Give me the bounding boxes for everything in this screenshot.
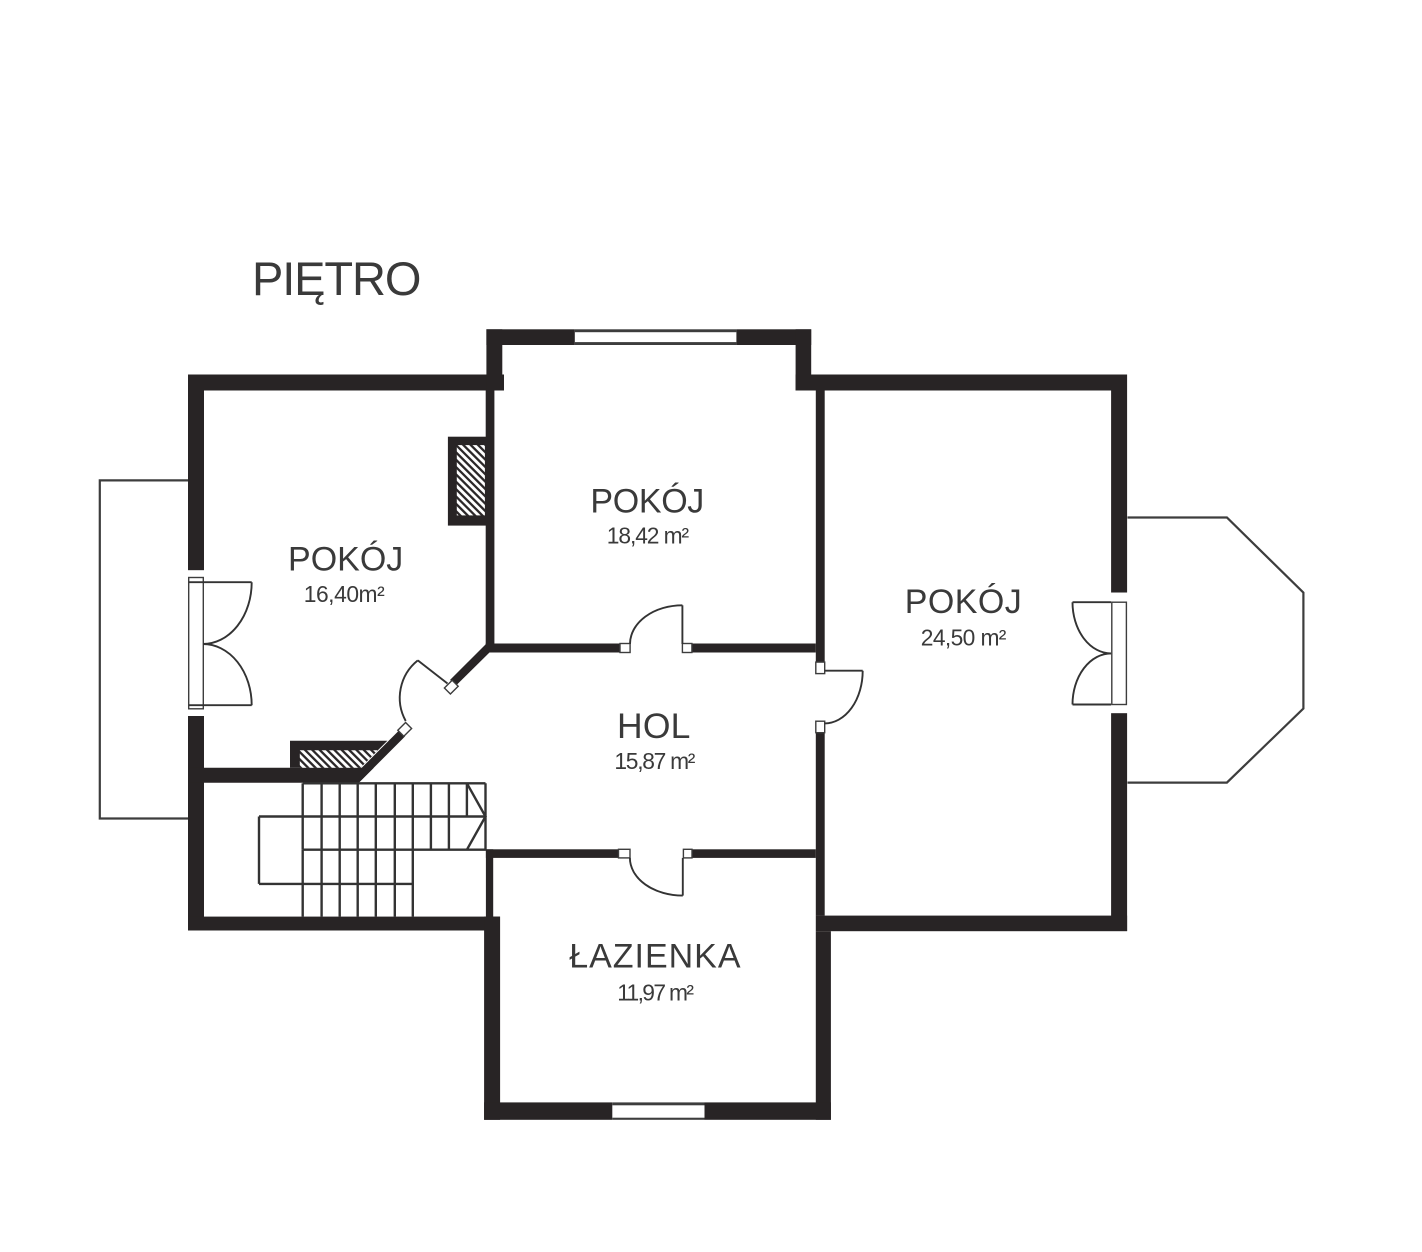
svg-text:24,50 m²: 24,50 m² xyxy=(921,625,1007,651)
svg-text:PIĘTRO: PIĘTRO xyxy=(252,252,421,305)
svg-text:16,40m²: 16,40m² xyxy=(304,581,385,607)
svg-text:POKÓJ: POKÓJ xyxy=(905,583,1022,621)
svg-text:11,97 m²: 11,97 m² xyxy=(617,980,694,1006)
svg-text:POKÓJ: POKÓJ xyxy=(590,483,704,521)
svg-text:HOL: HOL xyxy=(617,706,690,746)
svg-text:15,87 m²: 15,87 m² xyxy=(614,748,695,774)
svg-text:18,42 m²: 18,42 m² xyxy=(607,523,690,549)
svg-text:POKÓJ: POKÓJ xyxy=(288,541,403,579)
svg-text:ŁAZIENKA: ŁAZIENKA xyxy=(569,937,741,975)
